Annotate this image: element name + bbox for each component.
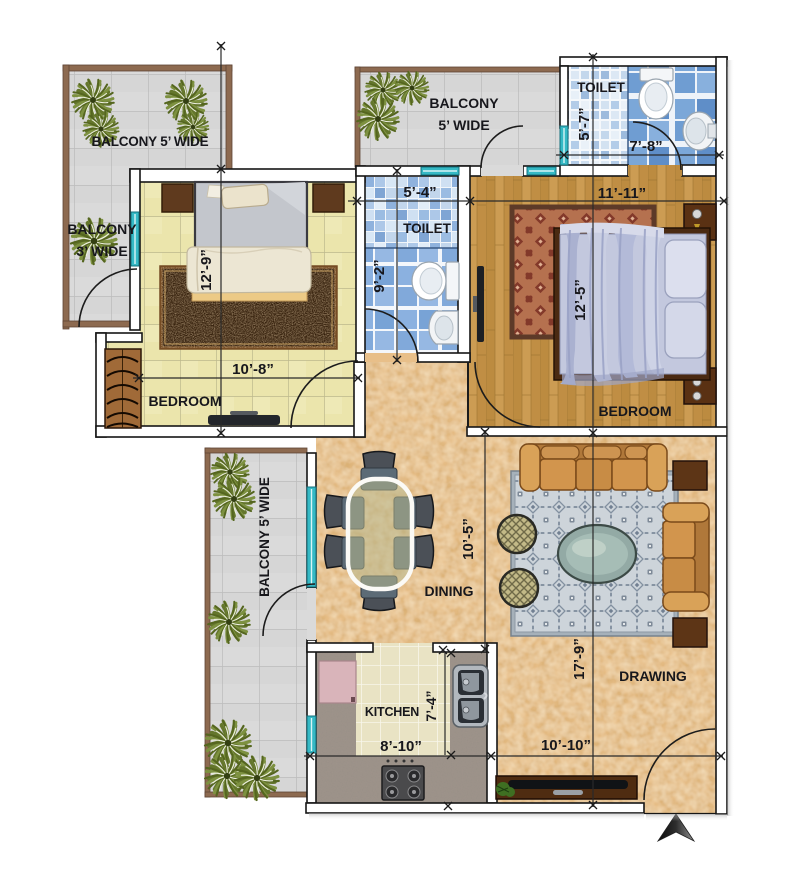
svg-text:KITCHEN: KITCHEN	[365, 705, 419, 719]
svg-text:10’-8”: 10’-8”	[232, 361, 274, 378]
svg-text:7’-4”: 7’-4”	[423, 690, 439, 721]
svg-text:12’-9”: 12’-9”	[198, 249, 215, 291]
svg-text:DINING: DINING	[425, 583, 474, 599]
svg-text:5’ WIDE: 5’ WIDE	[438, 117, 489, 133]
svg-text:12’-5”: 12’-5”	[572, 279, 589, 321]
svg-text:TOILET: TOILET	[577, 80, 626, 95]
svg-text:BALCONY 5’ WIDE: BALCONY 5’ WIDE	[92, 134, 209, 149]
svg-text:11’-11”: 11’-11”	[598, 185, 646, 202]
svg-text:10’-5”: 10’-5”	[460, 518, 477, 560]
svg-text:7’-8”: 7’-8”	[629, 138, 662, 155]
svg-text:BEDROOM: BEDROOM	[598, 403, 671, 419]
svg-text:TOILET: TOILET	[403, 221, 452, 236]
svg-text:8’-10”: 8’-10”	[380, 738, 422, 755]
svg-text:BALCONY: BALCONY	[67, 221, 137, 237]
svg-text:5’-4”: 5’-4”	[403, 184, 436, 201]
svg-text:BALCONY: BALCONY	[429, 95, 499, 111]
svg-text:17’-9”: 17’-9”	[571, 638, 588, 680]
svg-text:9’-2”: 9’-2”	[371, 259, 388, 292]
svg-text:BEDROOM: BEDROOM	[148, 393, 221, 409]
svg-text:3’ WIDE: 3’ WIDE	[76, 243, 127, 259]
svg-text:BALCONY 5’ WIDE: BALCONY 5’ WIDE	[257, 477, 272, 597]
svg-text:5’-7”: 5’-7”	[576, 107, 593, 140]
svg-text:DRAWING: DRAWING	[619, 668, 687, 684]
svg-text:10’-10”: 10’-10”	[541, 737, 591, 754]
